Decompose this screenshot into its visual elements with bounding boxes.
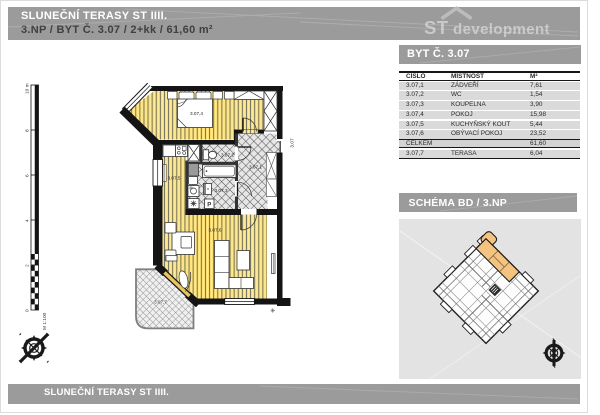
svg-text:3.07,7: 3.07,7 bbox=[154, 300, 167, 305]
svg-text:3.07,3: 3.07,3 bbox=[214, 188, 227, 193]
svg-text:3.07,1: 3.07,1 bbox=[249, 165, 262, 170]
svg-text:M 1:100: M 1:100 bbox=[42, 312, 48, 330]
svg-text:3.07: 3.07 bbox=[290, 138, 295, 148]
svg-text:0: 0 bbox=[25, 309, 31, 312]
svg-text:2: 2 bbox=[25, 264, 31, 267]
svg-text:3.07,6: 3.07,6 bbox=[208, 228, 221, 233]
svg-text:3.07,4: 3.07,4 bbox=[190, 111, 203, 116]
svg-text:P: P bbox=[207, 202, 211, 208]
svg-text:3.07,2: 3.07,2 bbox=[221, 153, 234, 158]
svg-text:4: 4 bbox=[25, 219, 31, 222]
svg-text:6: 6 bbox=[25, 174, 31, 177]
svg-text:8: 8 bbox=[25, 129, 31, 132]
svg-text:3.07,5: 3.07,5 bbox=[167, 176, 180, 181]
svg-text:10 m: 10 m bbox=[25, 83, 31, 94]
